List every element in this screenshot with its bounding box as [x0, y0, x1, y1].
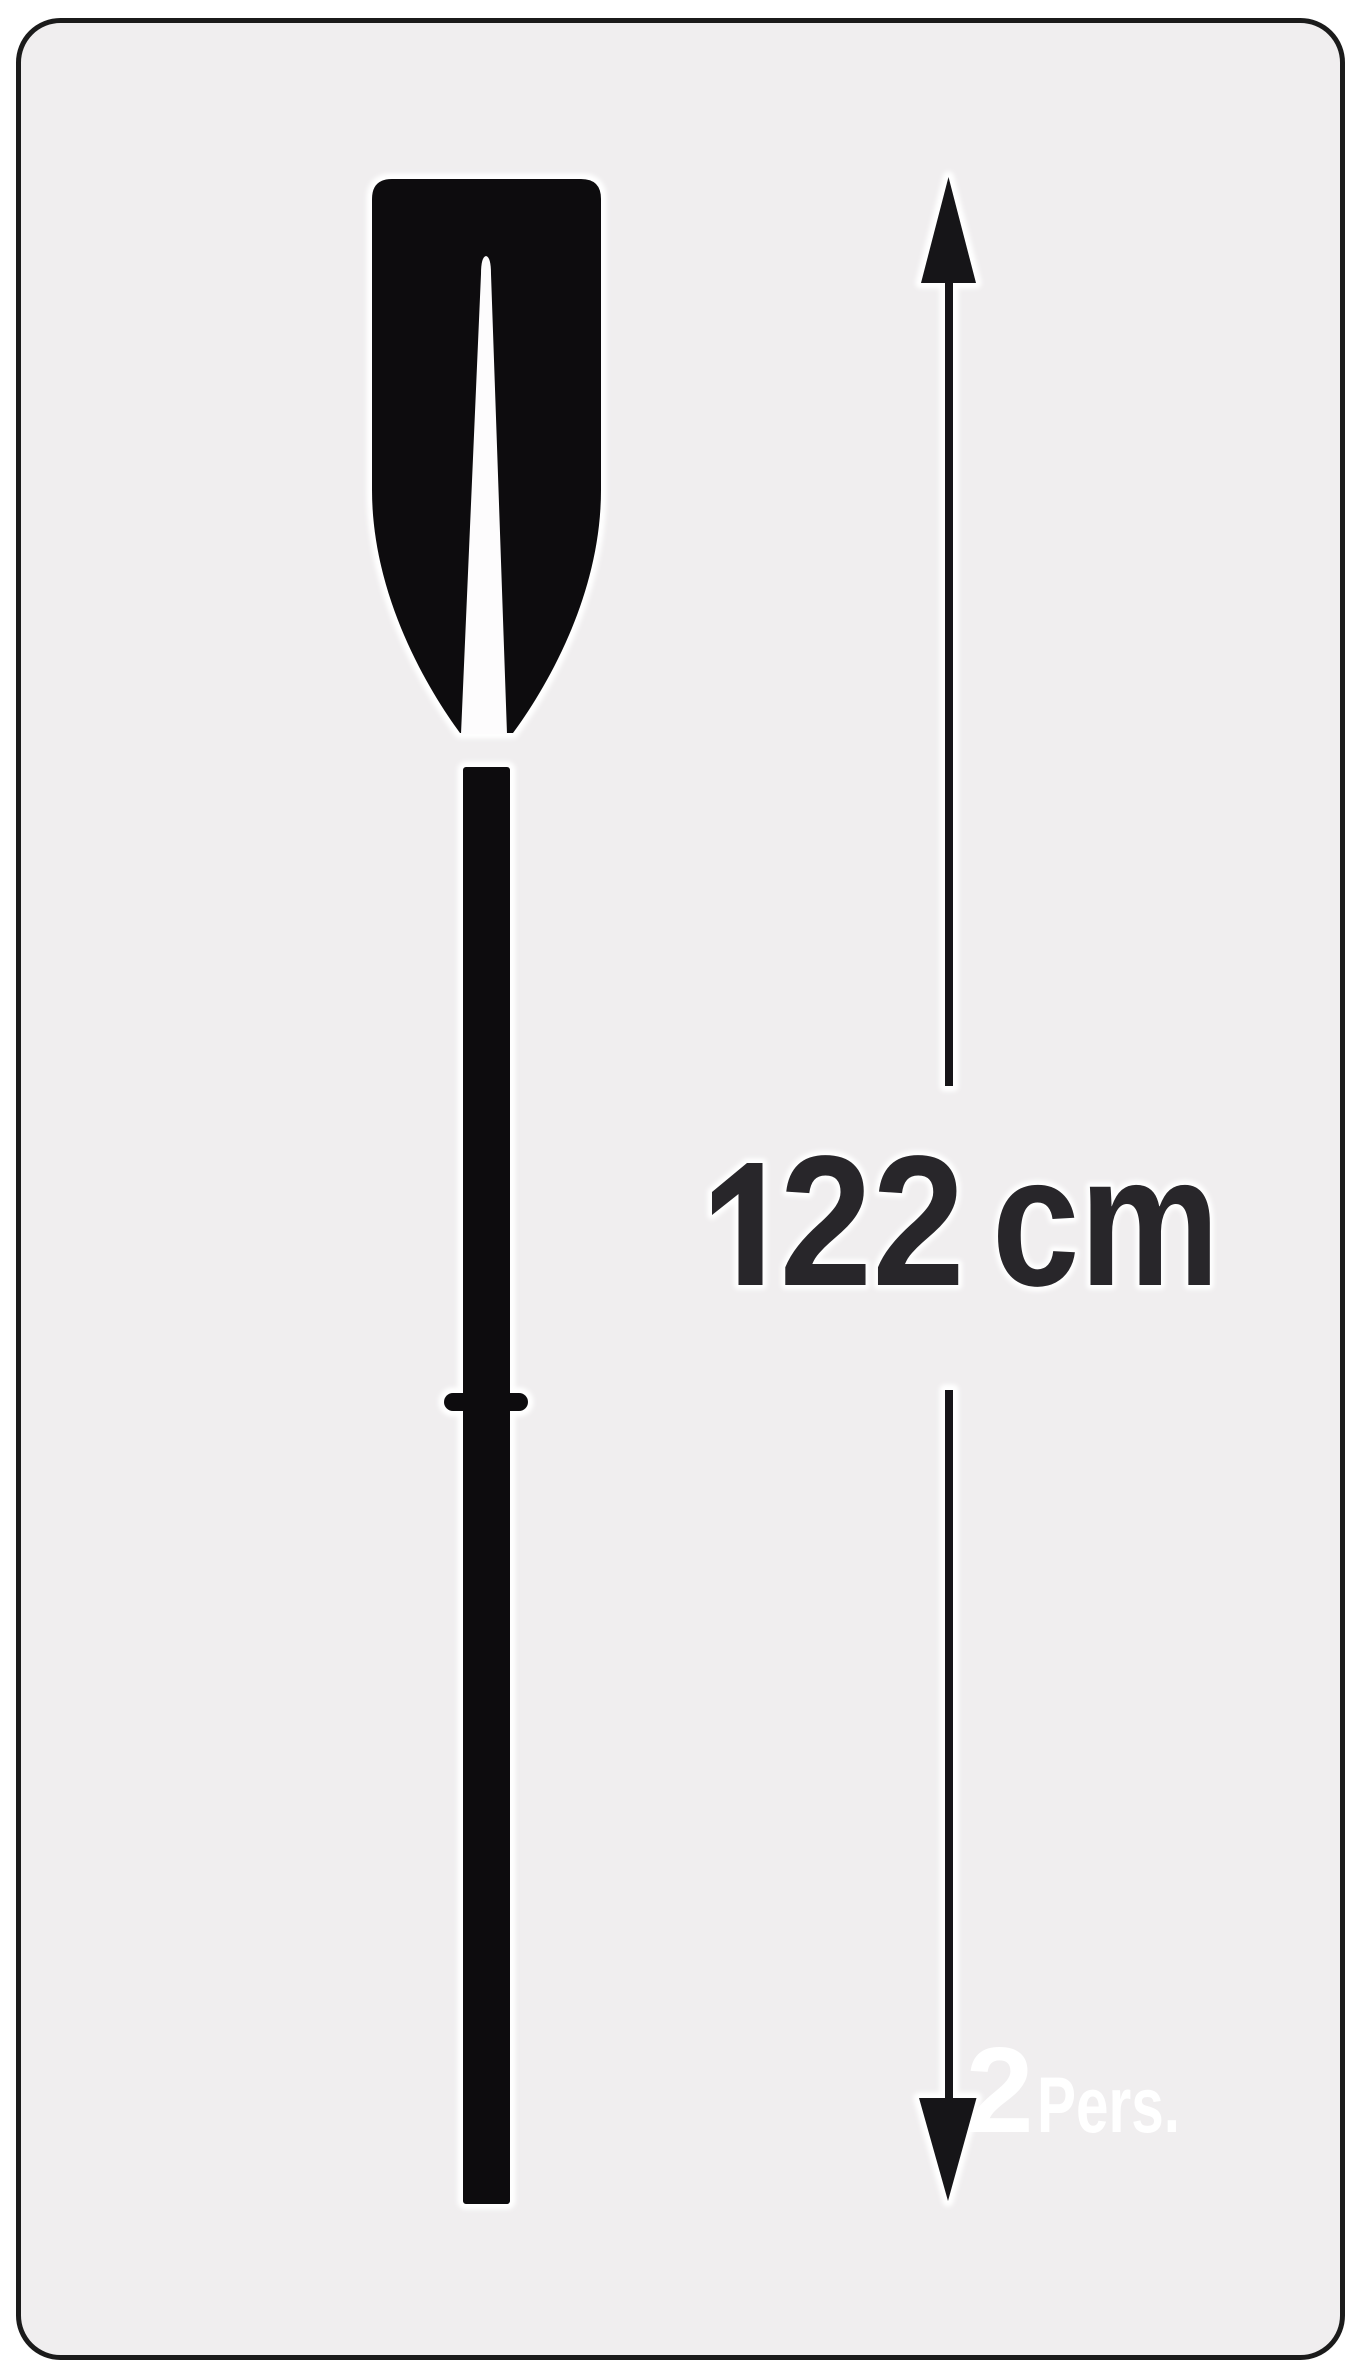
- svg-text:2: 2: [966, 2022, 1034, 2158]
- svg-text:Pers.: Pers.: [1037, 2061, 1180, 2149]
- svg-text:22: 22: [780, 1118, 965, 1325]
- svg-text:cm: cm: [992, 1118, 1220, 1325]
